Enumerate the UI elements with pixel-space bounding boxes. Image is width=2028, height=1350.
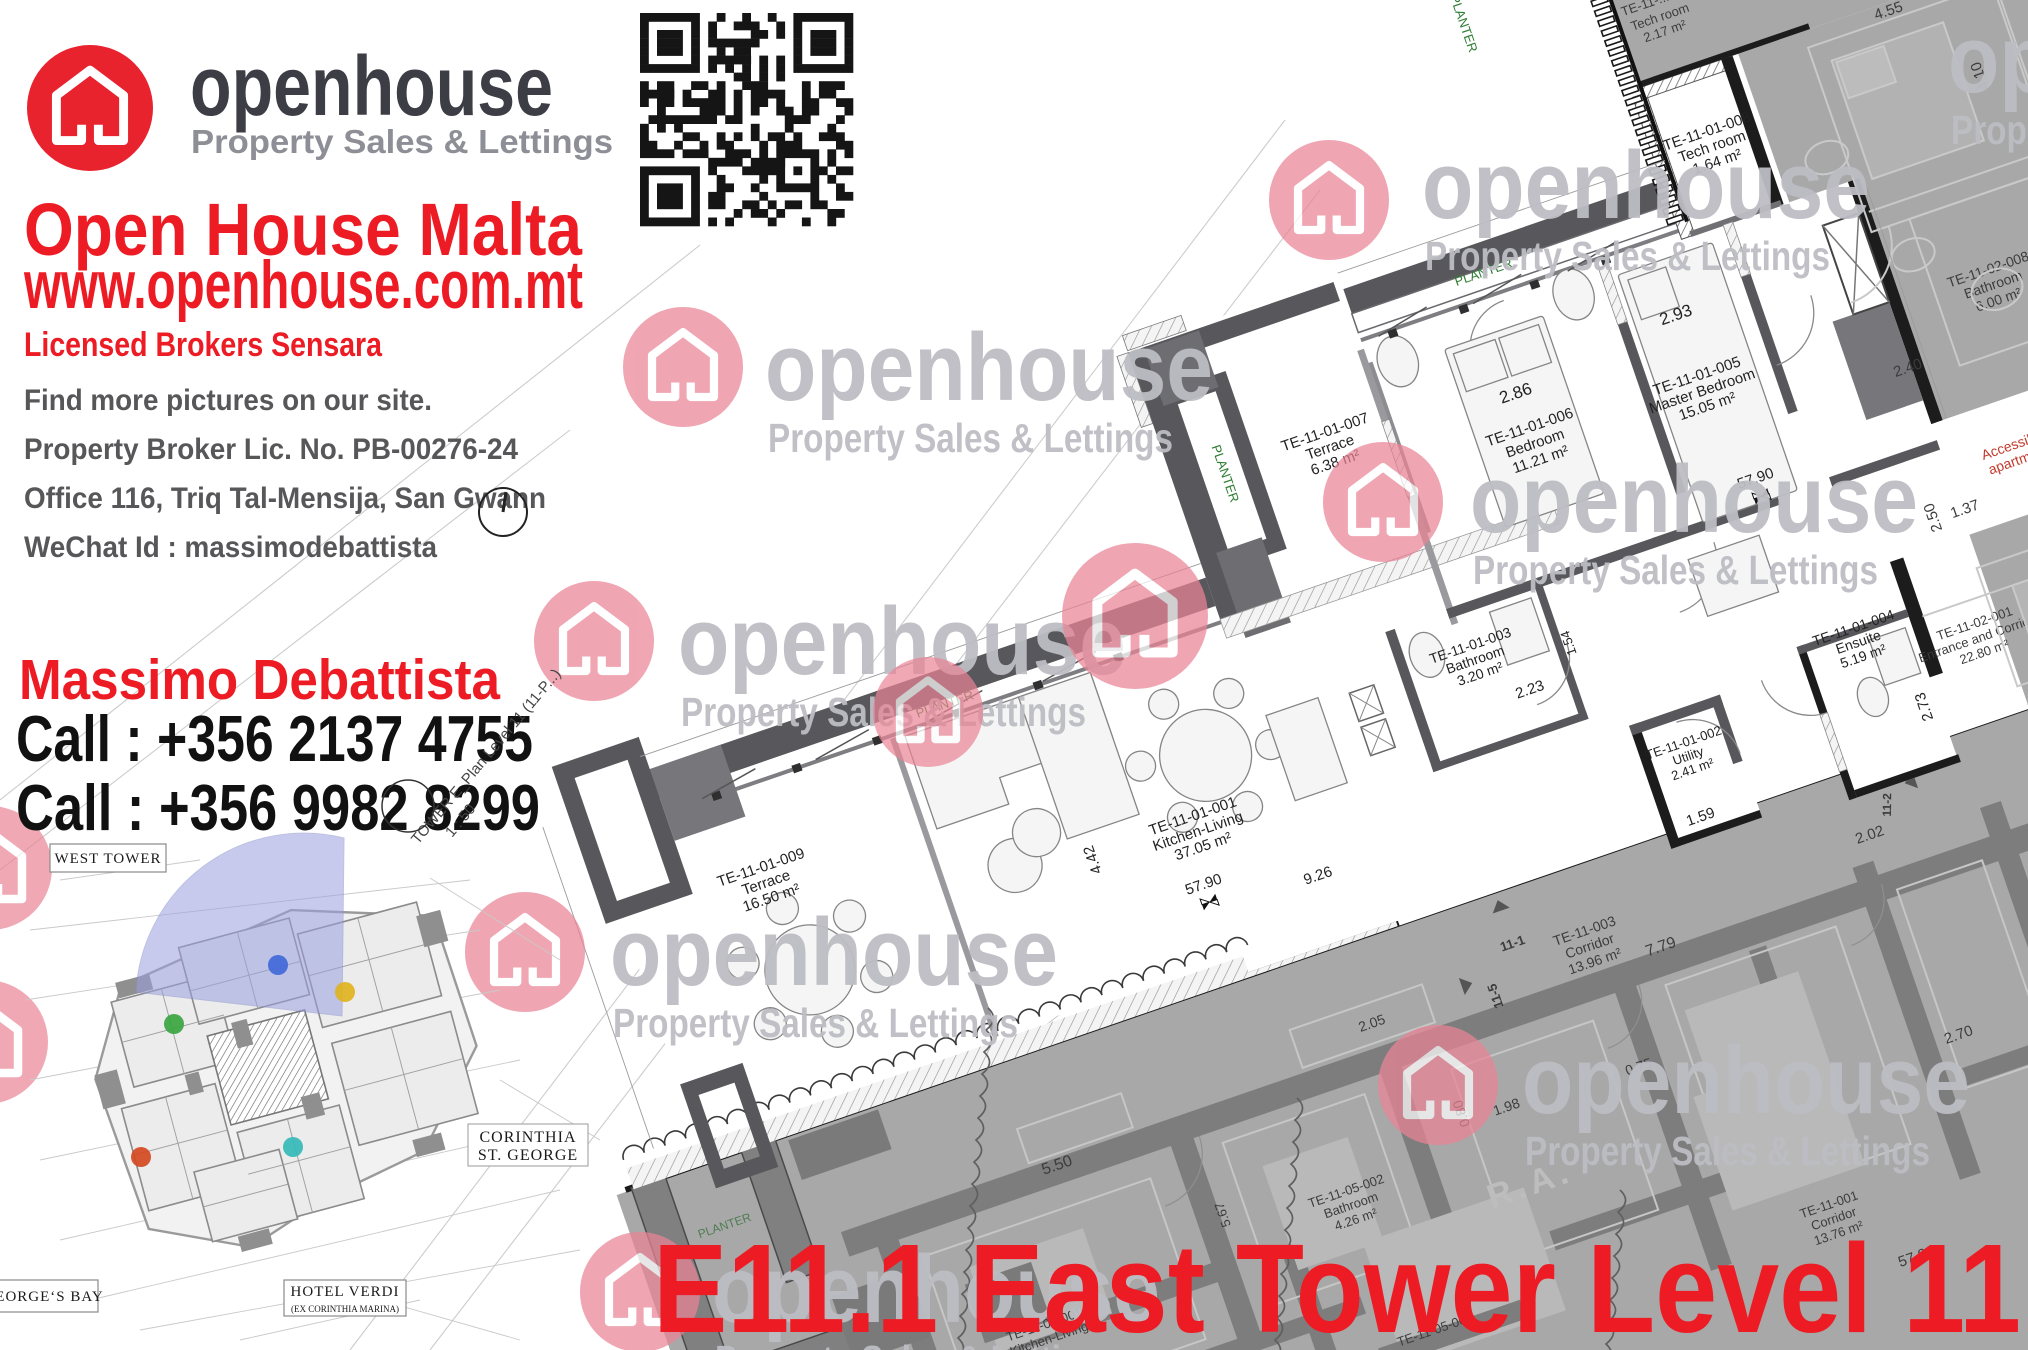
svg-text:ST. GEORGE: ST. GEORGE: [478, 1147, 578, 1164]
svg-text:openhouse: openhouse: [610, 899, 1058, 1006]
svg-text:Property Sales & Lettings: Property Sales & Lettings: [1525, 1128, 1930, 1174]
svg-text:Licensed Brokers Sensara: Licensed Brokers Sensara: [24, 326, 383, 364]
svg-text:Property Broker Lic. No. PB-00: Property Broker Lic. No. PB-00276-24: [24, 433, 518, 466]
svg-text:openhouse: openhouse: [1522, 1027, 1970, 1134]
svg-text:openhouse: openhouse: [1470, 446, 1918, 553]
svg-text:Property Sales & Lettings: Property Sales & Lettings: [1951, 107, 2028, 153]
svg-text:E11.1 East Tower Level 11: E11.1 East Tower Level 11: [653, 1218, 2021, 1350]
svg-text:www.openhouse.com.mt: www.openhouse.com.mt: [23, 247, 583, 323]
svg-text:openhouse: openhouse: [1948, 6, 2028, 113]
svg-text:Property Sales & Lettings: Property Sales & Lettings: [191, 123, 613, 160]
svg-text:openhouse: openhouse: [1422, 132, 1870, 239]
svg-text:11-2: 11-2: [1880, 793, 1894, 817]
svg-text:CORINTHIA: CORINTHIA: [480, 1129, 577, 1146]
svg-text:Property Sales & Lettings: Property Sales & Lettings: [768, 415, 1173, 461]
svg-text:Office 116, Triq Tal-Mensija,: Office 116, Triq Tal-Mensija, San Gwann: [24, 482, 546, 515]
svg-text:(EX CORINTHIA MARINA): (EX CORINTHIA MARINA): [291, 1304, 399, 1314]
svg-text:WEST TOWER: WEST TOWER: [54, 851, 161, 867]
svg-text:Property Sales & Lettings: Property Sales & Lettings: [1473, 547, 1878, 593]
svg-text:Call : +356 2137 4755: Call : +356 2137 4755: [16, 702, 533, 775]
svg-text:HOTEL VERDI: HOTEL VERDI: [291, 1284, 400, 1300]
svg-text:openhouse: openhouse: [765, 314, 1213, 421]
svg-text:WeChat Id : massimodebattista: WeChat Id : massimodebattista: [24, 531, 437, 564]
svg-text:openhouse: openhouse: [190, 39, 553, 133]
svg-text:ST.GEORGE‘S BAY: ST.GEORGE‘S BAY: [0, 1289, 104, 1305]
svg-text:Property Sales & Lettings: Property Sales & Lettings: [613, 1000, 1018, 1046]
svg-text:Find more pictures on our site: Find more pictures on our site.: [24, 384, 432, 417]
svg-text:Property Sales & Lettings: Property Sales & Lettings: [1425, 233, 1830, 279]
